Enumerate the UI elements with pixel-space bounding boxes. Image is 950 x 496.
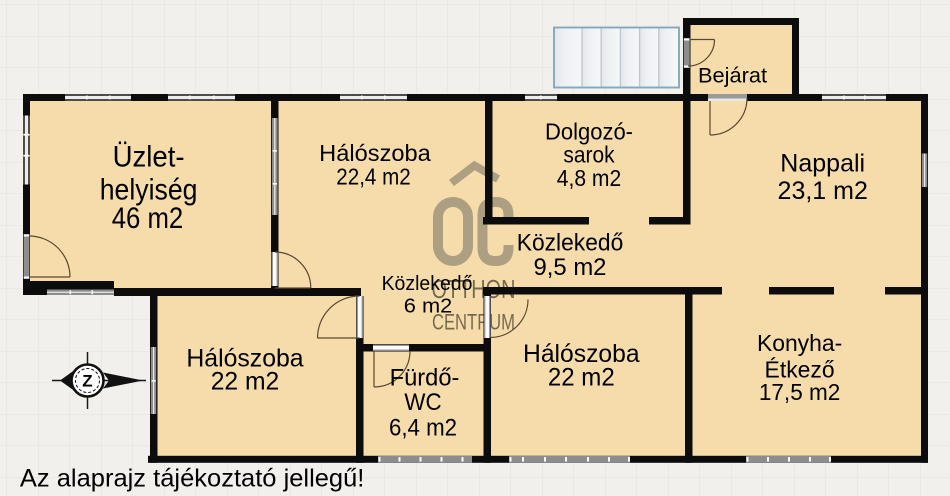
svg-text:22 m2: 22 m2 bbox=[211, 369, 280, 396]
svg-text:46 m2: 46 m2 bbox=[112, 202, 184, 235]
svg-text:6,4 m2: 6,4 m2 bbox=[389, 414, 457, 441]
svg-text:23,1 m2: 23,1 m2 bbox=[778, 177, 868, 205]
svg-text:Z: Z bbox=[82, 372, 92, 391]
svg-text:Fürdő-: Fürdő- bbox=[390, 364, 460, 391]
svg-text:Konyha-: Konyha- bbox=[757, 330, 842, 356]
svg-text:17,5 m2: 17,5 m2 bbox=[759, 379, 841, 405]
svg-text:Közlekedő: Közlekedő bbox=[517, 230, 624, 257]
svg-text:Üzlet-: Üzlet- bbox=[113, 141, 185, 174]
svg-text:4,8 m2: 4,8 m2 bbox=[557, 165, 622, 191]
svg-text:Az alaprajz tájékoztató jelleg: Az alaprajz tájékoztató jellegű! bbox=[20, 465, 365, 493]
svg-text:Bejárat: Bejárat bbox=[698, 65, 767, 88]
svg-text:Közlekedő: Közlekedő bbox=[382, 273, 473, 295]
svg-text:22 m2: 22 m2 bbox=[548, 364, 615, 391]
svg-text:9,5 m2: 9,5 m2 bbox=[534, 254, 607, 281]
svg-text:Hálószoba: Hálószoba bbox=[319, 140, 432, 166]
svg-text:sarok: sarok bbox=[563, 142, 615, 168]
svg-text:Nappali: Nappali bbox=[780, 150, 865, 178]
svg-text:6 m2: 6 m2 bbox=[404, 294, 453, 317]
svg-text:WC: WC bbox=[404, 389, 441, 416]
svg-text:22,4 m2: 22,4 m2 bbox=[336, 164, 410, 190]
